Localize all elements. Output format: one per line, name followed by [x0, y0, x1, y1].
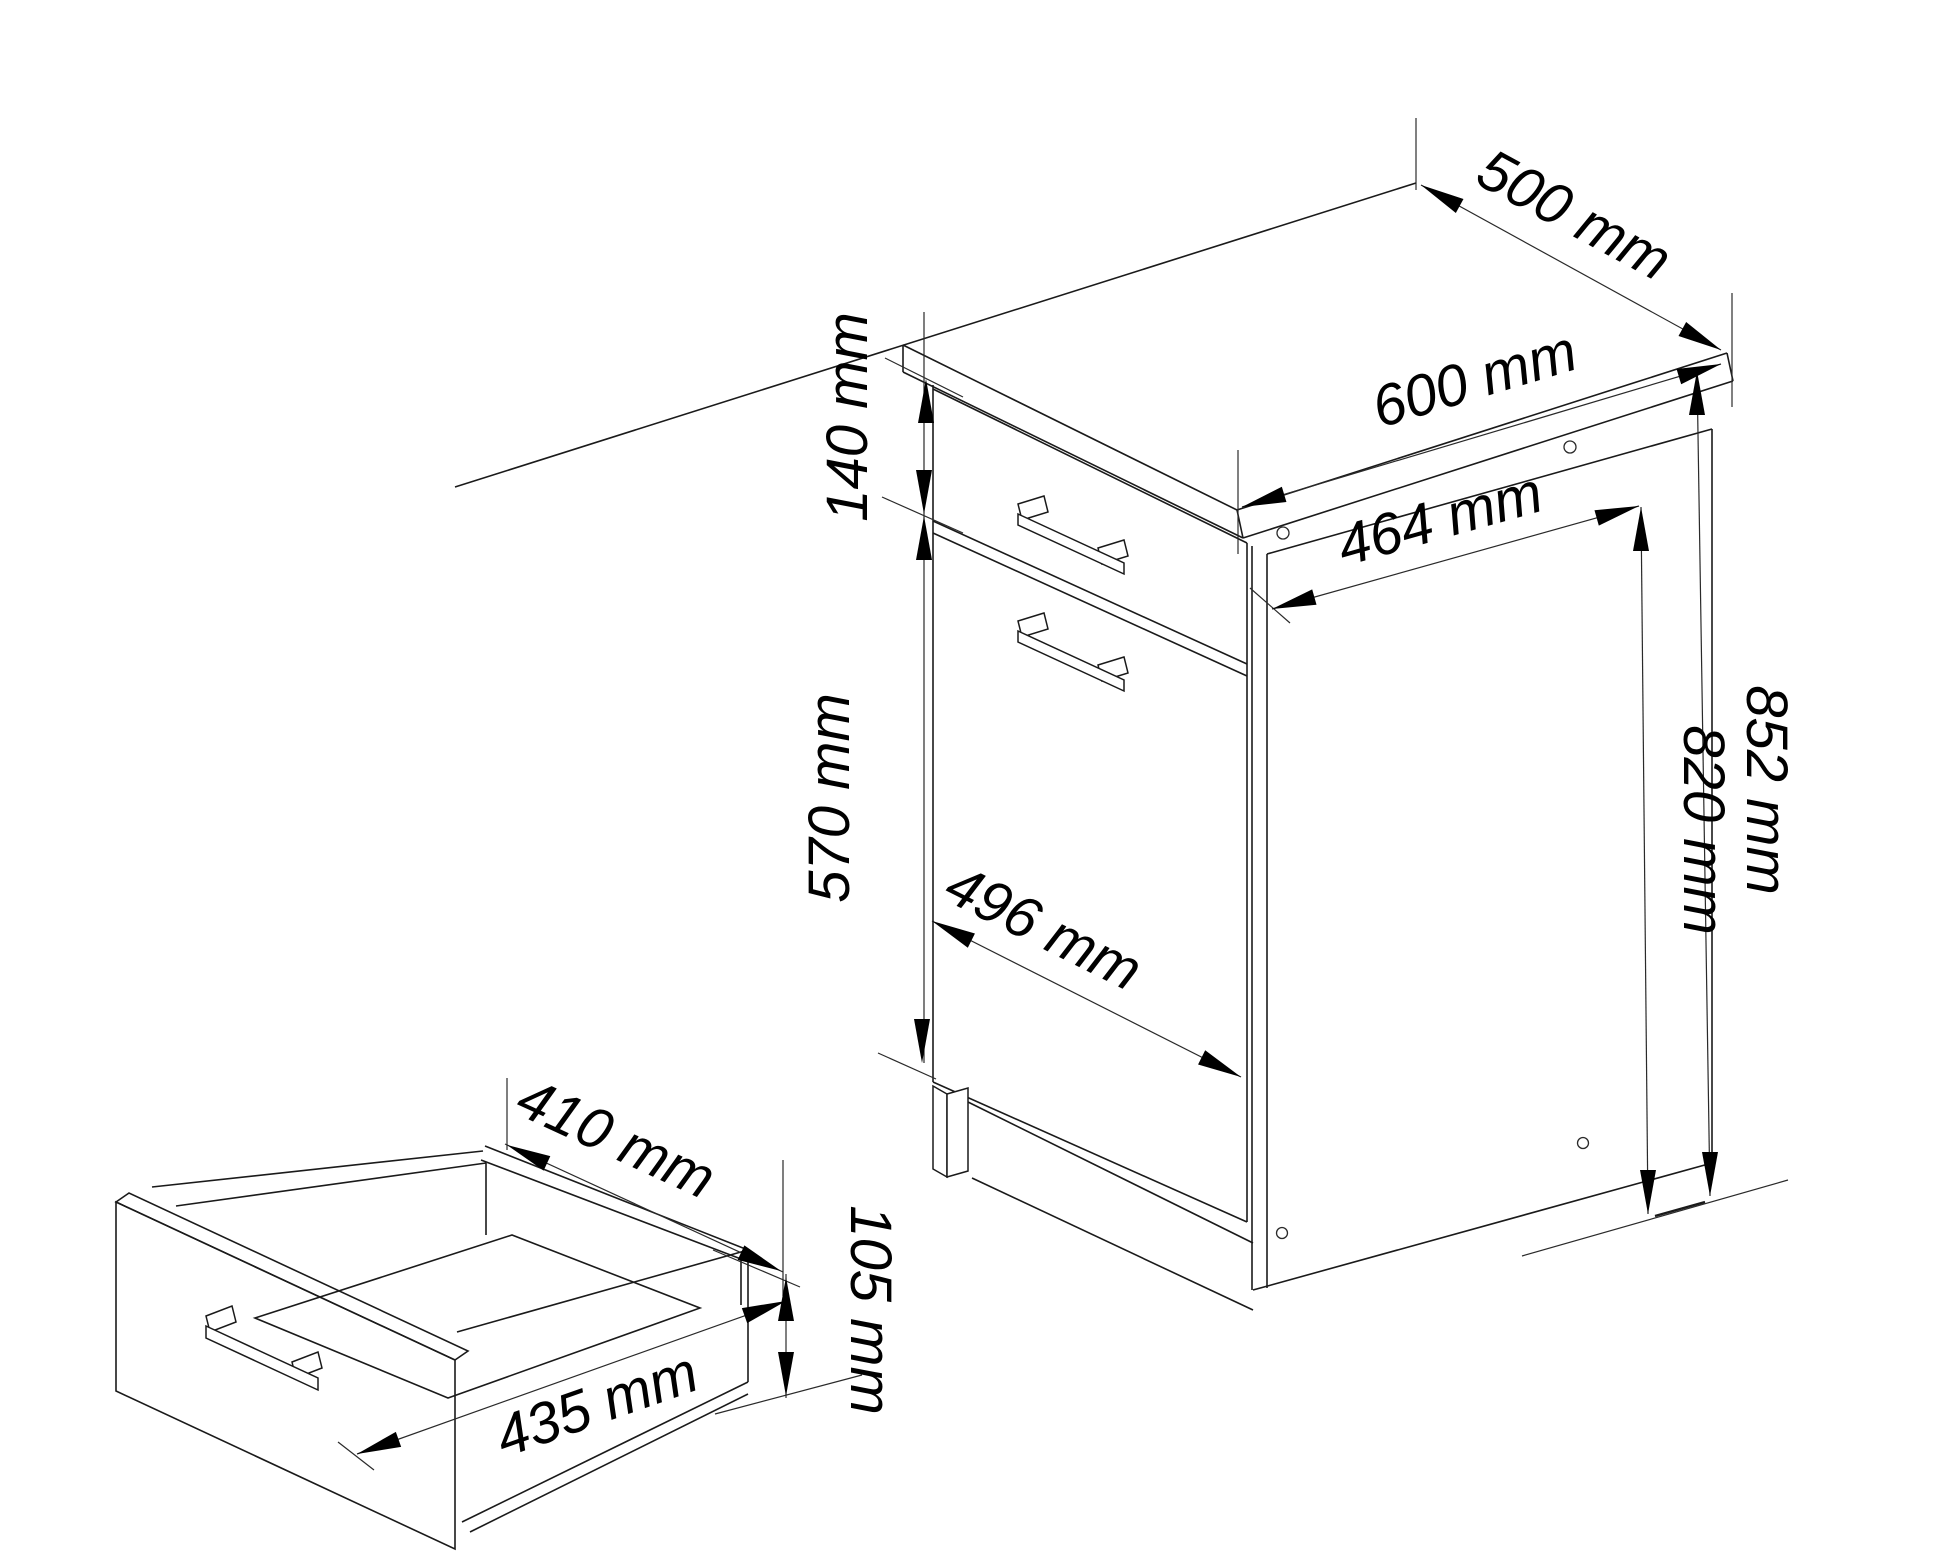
dim-label-drawer-inner-width: 435 mm [487, 1339, 706, 1470]
arrowhead-icon [914, 1019, 930, 1063]
shelf-pin-hole [1277, 1228, 1288, 1239]
cabinet-dimension-diagram: 500 mm 600 mm 464 mm 140 mm 570 mm 496 m… [0, 0, 1946, 1555]
arrowhead-icon [1633, 507, 1649, 551]
arrowhead-icon [1679, 322, 1725, 357]
shelf-pin-hole [1578, 1138, 1589, 1149]
diagram-canvas: 500 mm 600 mm 464 mm 140 mm 570 mm 496 m… [0, 0, 1946, 1555]
dim-label-worktop-depth: 600 mm [1365, 318, 1584, 440]
arrowhead-icon [1270, 589, 1317, 616]
arrowhead-icon [1240, 487, 1287, 515]
arrowhead-icon [1640, 1170, 1656, 1214]
arrowhead-icon [1198, 1050, 1245, 1084]
arrowhead-icon [1702, 1152, 1718, 1196]
dim-label-drawer-side-height: 105 mm [838, 1205, 903, 1415]
drawer-box-handle [206, 1306, 322, 1390]
dimension-labels: 500 mm 600 mm 464 mm 140 mm 570 mm 496 m… [487, 136, 1799, 1470]
arrowhead-icon [738, 1245, 785, 1278]
dim-label-total-height: 852 mm [1734, 685, 1799, 895]
shelf-pin-hole [1564, 441, 1576, 453]
arrowhead-icon [916, 470, 932, 514]
cabinet-side-panel [1252, 429, 1712, 1290]
dim-label-side-panel-depth: 464 mm [1330, 460, 1549, 579]
arrowhead-icon [1677, 356, 1724, 384]
door-handle [1018, 613, 1128, 691]
dim-label-carcass-side-height: 820 mm [1671, 725, 1736, 935]
arrowhead-icon [1417, 178, 1463, 213]
plinth-and-foot [933, 1086, 1253, 1310]
drawer-box-sides [152, 1146, 748, 1532]
drawer-handle [1018, 496, 1128, 574]
arrowhead-icon [504, 1138, 551, 1171]
arrowhead-icon [916, 516, 932, 560]
dim-label-drawer-inner-depth: 410 mm [507, 1065, 725, 1212]
dim-label-front-width: 496 mm [935, 852, 1152, 1004]
arrowhead-icon [778, 1352, 794, 1396]
arrowhead-icon [354, 1432, 401, 1462]
dim-label-door-height: 570 mm [797, 693, 862, 903]
arrowhead-icon [1594, 498, 1641, 525]
cabinet-front-face [933, 385, 1247, 1222]
dim-label-drawer-front-height: 140 mm [815, 312, 880, 522]
shelf-pin-hole [1277, 527, 1289, 539]
